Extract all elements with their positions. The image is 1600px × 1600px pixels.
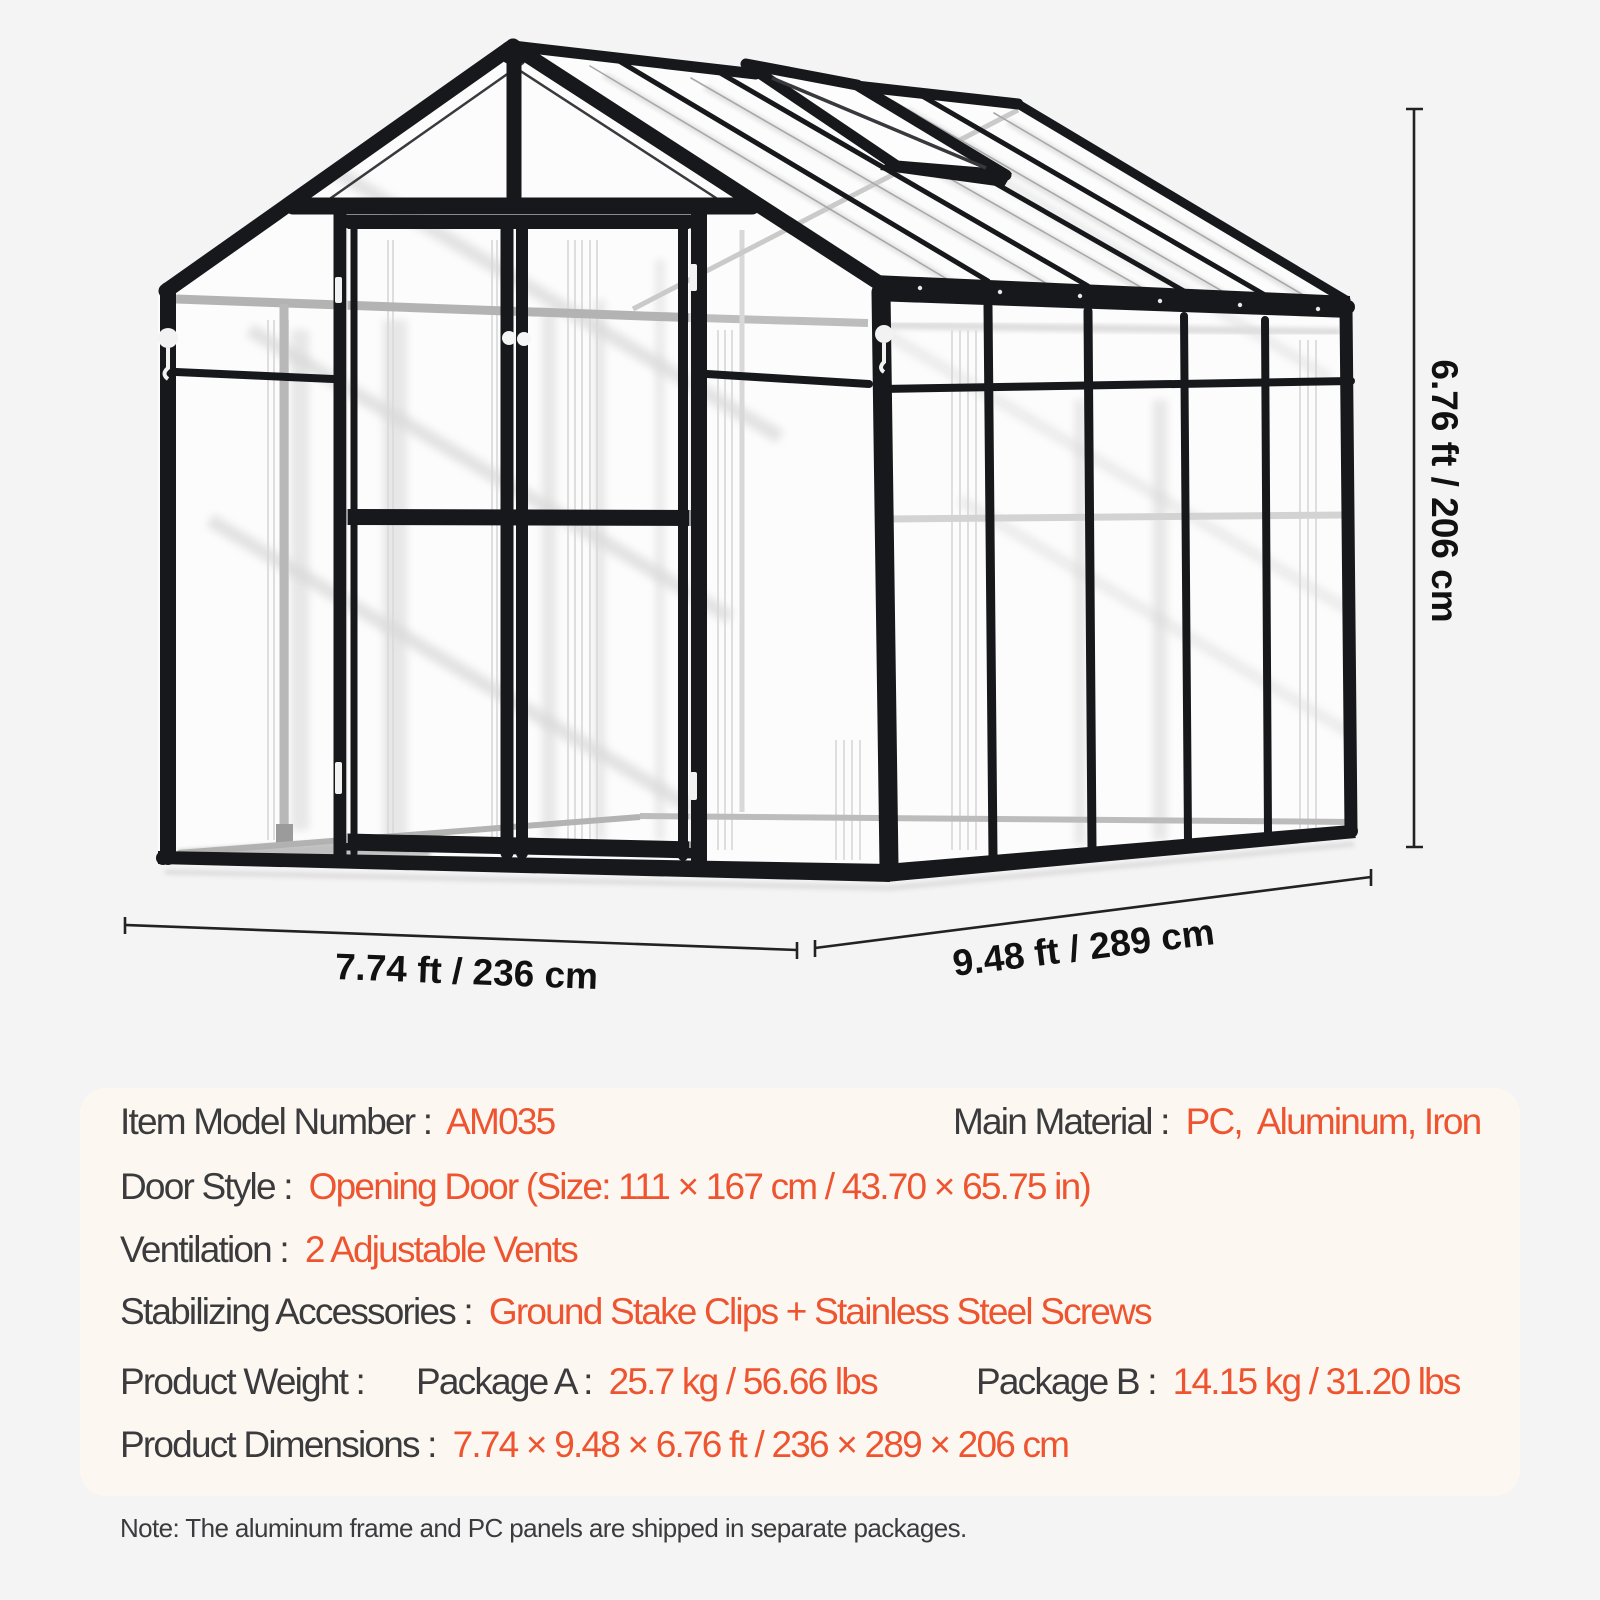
svg-text:7.74 ft / 236 cm: 7.74 ft / 236 cm bbox=[334, 946, 599, 997]
svg-text:6.76 ft / 206 cm: 6.76 ft / 206 cm bbox=[1424, 359, 1465, 622]
svg-text:9.48 ft / 289 cm: 9.48 ft / 289 cm bbox=[950, 911, 1216, 984]
